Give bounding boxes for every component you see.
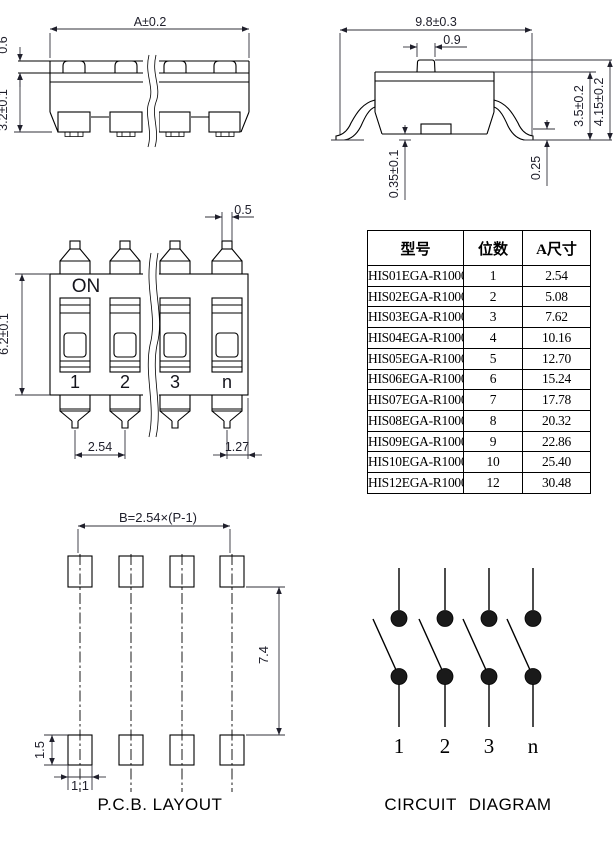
model-cell: HIS10EGA-R1000 [368, 452, 464, 473]
dimension-cell: 25.40 [523, 452, 591, 473]
table-row: HIS01EGA-R100012.54 [368, 266, 591, 287]
table-row: HIS05EGA-R1000512.70 [368, 348, 591, 369]
dimension-cell: 7.62 [523, 307, 591, 328]
positions-cell: 9 [464, 431, 523, 452]
dim-label-lead-thickness: 0.25 [529, 156, 543, 180]
svg-text:1: 1 [70, 372, 80, 392]
positions-cell: 3 [464, 307, 523, 328]
dim-label-row-gap: 7.4 [256, 646, 271, 664]
dim-label-overall-width: 9.8±0.3 [415, 15, 457, 29]
pcb-layout-drawing: B=2.54×(P-1) 7.4 1.5 [30, 505, 300, 800]
positions-cell: 5 [464, 348, 523, 369]
table-row: HIS03EGA-R100037.62 [368, 307, 591, 328]
dim-label-body-height: 3.2±0.1 [0, 89, 10, 131]
dim-label-body-width: 6.2±0.1 [0, 313, 11, 355]
contact-dot [437, 611, 453, 627]
dim-span: B=2.54×(P-1) [78, 510, 230, 553]
circuit-switch-n: n [507, 568, 541, 758]
positions-cell: 10 [464, 452, 523, 473]
model-cell: HIS07EGA-R1000 [368, 390, 464, 411]
table-row: HIS12EGA-R10001230.48 [368, 473, 591, 494]
dim-standoff: 0.35±0.1 [387, 125, 411, 200]
positions-cell: 4 [464, 328, 523, 349]
table-row: HIS02EGA-R100025.08 [368, 286, 591, 307]
table-row: HIS08EGA-R1000820.32 [368, 411, 591, 432]
front-view-drawing: ON 1 [0, 200, 270, 470]
dimension-cell: 12.70 [523, 348, 591, 369]
dim-label-actuator-width: 0.9 [443, 33, 460, 47]
svg-text:3: 3 [170, 372, 180, 392]
positions-cell: 12 [464, 473, 523, 494]
table-row: HIS10EGA-R10001025.40 [368, 452, 591, 473]
dim-label-pitch: 2.54 [88, 440, 112, 454]
dim-actuator-height: 0.6 [0, 36, 20, 87]
header-a-dimension: A尺寸 [523, 231, 591, 266]
dim-pad-height: 1.5 [32, 735, 68, 765]
end-view-drawing: 9.8±0.3 0.9 3.5±0.2 [330, 0, 615, 210]
dim-pitch: 2.54 [75, 430, 125, 459]
contact-dot [525, 611, 541, 627]
dim-end-offset: 1.27 [213, 398, 262, 459]
circuit-switch-label: 2 [440, 734, 451, 758]
dim-label-actuator-height: 0.6 [0, 36, 10, 53]
dim-overall-width: A±0.2 [50, 15, 249, 58]
pcb-layout-caption: P.C.B. LAYOUT [25, 795, 295, 815]
dim-body-width: 6.2±0.1 [0, 274, 50, 395]
dim-row-gap: 7.4 [246, 587, 285, 735]
svg-text:n: n [222, 372, 232, 392]
dim-label-standoff: 0.35±0.1 [387, 150, 401, 199]
dim-label-total-height: 4.15±0.2 [592, 78, 606, 127]
dim-label-overall-width: A±0.2 [134, 15, 167, 29]
table-row: HIS04EGA-R1000410.16 [368, 328, 591, 349]
contact-dot [437, 669, 453, 685]
table-row: HIS06EGA-R1000615.24 [368, 369, 591, 390]
svg-text:2: 2 [120, 372, 130, 392]
contact-dot [481, 611, 497, 627]
circuit-diagram-drawing: 1 2 3 n [360, 555, 560, 765]
side-view-drawing: A±0.2 0.6 [0, 0, 270, 160]
dimension-cell: 5.08 [523, 286, 591, 307]
pad-center-lines [80, 554, 232, 792]
positions-cell: 7 [464, 390, 523, 411]
dimension-cell: 15.24 [523, 369, 591, 390]
circuit-switch-label: 1 [394, 734, 405, 758]
dim-overall-width: 9.8±0.3 [340, 15, 532, 137]
dim-body-height: 3.5±0.2 [572, 72, 590, 140]
contact-dot [391, 611, 407, 627]
circuit-switch-label: n [528, 734, 539, 758]
dim-label-lead-width: 0.5 [234, 203, 251, 217]
circuit-switch-1: 1 [373, 568, 407, 758]
extension-lines [435, 60, 612, 72]
solder-pads [68, 556, 244, 765]
datasheet-page: A±0.2 0.6 [0, 0, 615, 843]
dim-lead-thickness: 0.25 [529, 120, 555, 186]
dim-label-span: B=2.54×(P-1) [119, 510, 197, 525]
contact-dot [525, 669, 541, 685]
circuit-diagram-caption: CIRCUIT DIAGRAM [338, 795, 598, 815]
dim-label-pad-height: 1.5 [32, 741, 47, 759]
model-cell: HIS01EGA-R1000 [368, 266, 464, 287]
model-cell: HIS03EGA-R1000 [368, 307, 464, 328]
contact-dot [481, 669, 497, 685]
positions-cell: 1 [464, 266, 523, 287]
dimension-cell: 2.54 [523, 266, 591, 287]
dimension-cell: 10.16 [523, 328, 591, 349]
on-label: ON [72, 276, 101, 297]
header-positions: 位数 [464, 231, 523, 266]
dim-label-pad-width: 1.1 [71, 778, 89, 793]
dim-body-height: 3.2±0.1 [0, 73, 52, 132]
model-cell: HIS09EGA-R1000 [368, 431, 464, 452]
end-view-body [375, 60, 494, 134]
circuit-switch-3: 3 [463, 568, 497, 758]
dim-label-body-height: 3.5±0.2 [572, 85, 586, 127]
side-view-body [18, 61, 249, 137]
table-body: HIS01EGA-R100012.54HIS02EGA-R100025.08HI… [368, 266, 591, 494]
dim-label-end-offset: 1.27 [225, 440, 249, 454]
dimension-cell: 22.86 [523, 431, 591, 452]
dimension-cell: 17.78 [523, 390, 591, 411]
model-cell: HIS02EGA-R1000 [368, 286, 464, 307]
circuit-switch-label: 3 [484, 734, 495, 758]
contact-dot [391, 669, 407, 685]
dimension-cell: 20.32 [523, 411, 591, 432]
circuit-switch-2: 2 [419, 568, 453, 758]
positions-cell: 2 [464, 286, 523, 307]
break-lines [143, 250, 160, 440]
model-cell: HIS04EGA-R1000 [368, 328, 464, 349]
model-cell: HIS05EGA-R1000 [368, 348, 464, 369]
positions-cell: 6 [464, 369, 523, 390]
dim-lead-width: 0.5 [205, 203, 254, 241]
table-row: HIS09EGA-R1000922.86 [368, 431, 591, 452]
table-header-row: 型号 位数 A尺寸 [368, 231, 591, 266]
model-cell: HIS12EGA-R1000 [368, 473, 464, 494]
model-table: 型号 位数 A尺寸 HIS01EGA-R100012.54HIS02EGA-R1… [367, 230, 591, 494]
header-model: 型号 [368, 231, 464, 266]
dimension-cell: 30.48 [523, 473, 591, 494]
break-lines [143, 54, 159, 148]
dim-actuator-width: 0.9 [403, 33, 467, 57]
model-cell: HIS06EGA-R1000 [368, 369, 464, 390]
table-row: HIS07EGA-R1000717.78 [368, 390, 591, 411]
positions-cell: 8 [464, 411, 523, 432]
model-cell: HIS08EGA-R1000 [368, 411, 464, 432]
